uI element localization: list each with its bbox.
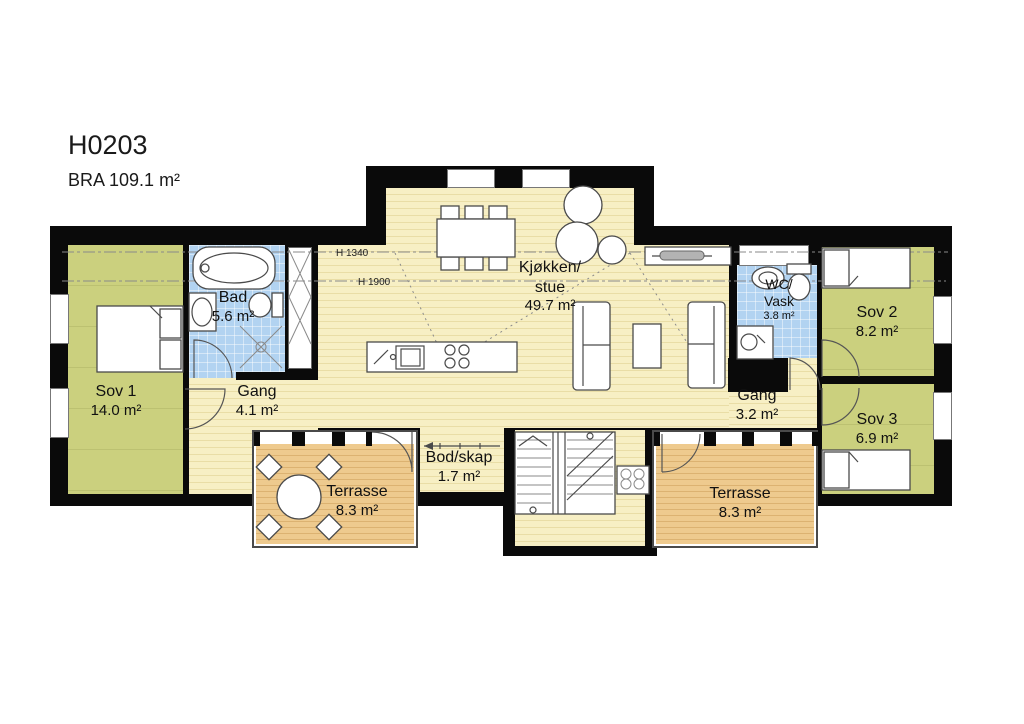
room-label-gang2: Gang 3.2 m² <box>736 386 779 424</box>
window <box>739 245 809 266</box>
terrace-post <box>292 432 305 446</box>
window <box>50 388 69 438</box>
window <box>447 169 495 188</box>
window <box>522 169 570 188</box>
room-kjokken-stue-upper <box>386 188 634 250</box>
terrace-post <box>742 432 754 446</box>
room-label-terrasse-right: Terrasse 8.3 m² <box>709 484 770 522</box>
terrace-post <box>254 432 260 446</box>
terrace-post <box>654 432 660 446</box>
room-label-gang1: Gang 4.1 m² <box>236 382 279 420</box>
room-label-wc-vask: WC/ Vask 3.8 m² <box>763 276 794 324</box>
wc-door-area <box>788 358 817 392</box>
terrace-post <box>812 432 818 446</box>
ceiling-height-note-1: H 1340 <box>336 248 368 259</box>
room-label-terrasse-left: Terrasse 8.3 m² <box>326 482 387 520</box>
room-label-sov2: Sov 2 8.2 m² <box>856 303 899 341</box>
terrace-post <box>704 432 716 446</box>
plan-area-label: BRA 109.1 m² <box>68 170 180 191</box>
terrace-post <box>780 432 792 446</box>
room-label-sov3: Sov 3 6.9 m² <box>856 410 899 448</box>
wall-below-bad <box>236 372 318 380</box>
room-label-bod-skap: Bod/skap 1.7 m² <box>426 448 493 486</box>
room-stair-hall <box>515 430 645 546</box>
room-label-kjokken-stue: Kjøkken/ stue 49.7 m² <box>519 258 581 315</box>
wall-sov2-sov3 <box>817 376 934 384</box>
window <box>933 392 952 440</box>
window <box>50 294 69 344</box>
ceiling-height-note-2: H 1900 <box>358 277 390 288</box>
room-label-bad: Bad 5.6 m² <box>212 288 255 326</box>
window <box>933 296 952 344</box>
terrace-post <box>366 432 372 446</box>
room-label-sov1: Sov 1 14.0 m² <box>91 382 142 420</box>
closet-column <box>288 247 312 369</box>
room-sov1 <box>68 245 183 494</box>
floor-plan: H0203 BRA 109.1 m² Sov 1 14.0 m² Bad 5.6… <box>0 0 1024 724</box>
terrace-post <box>332 432 345 446</box>
plan-title: H0203 <box>68 130 148 161</box>
